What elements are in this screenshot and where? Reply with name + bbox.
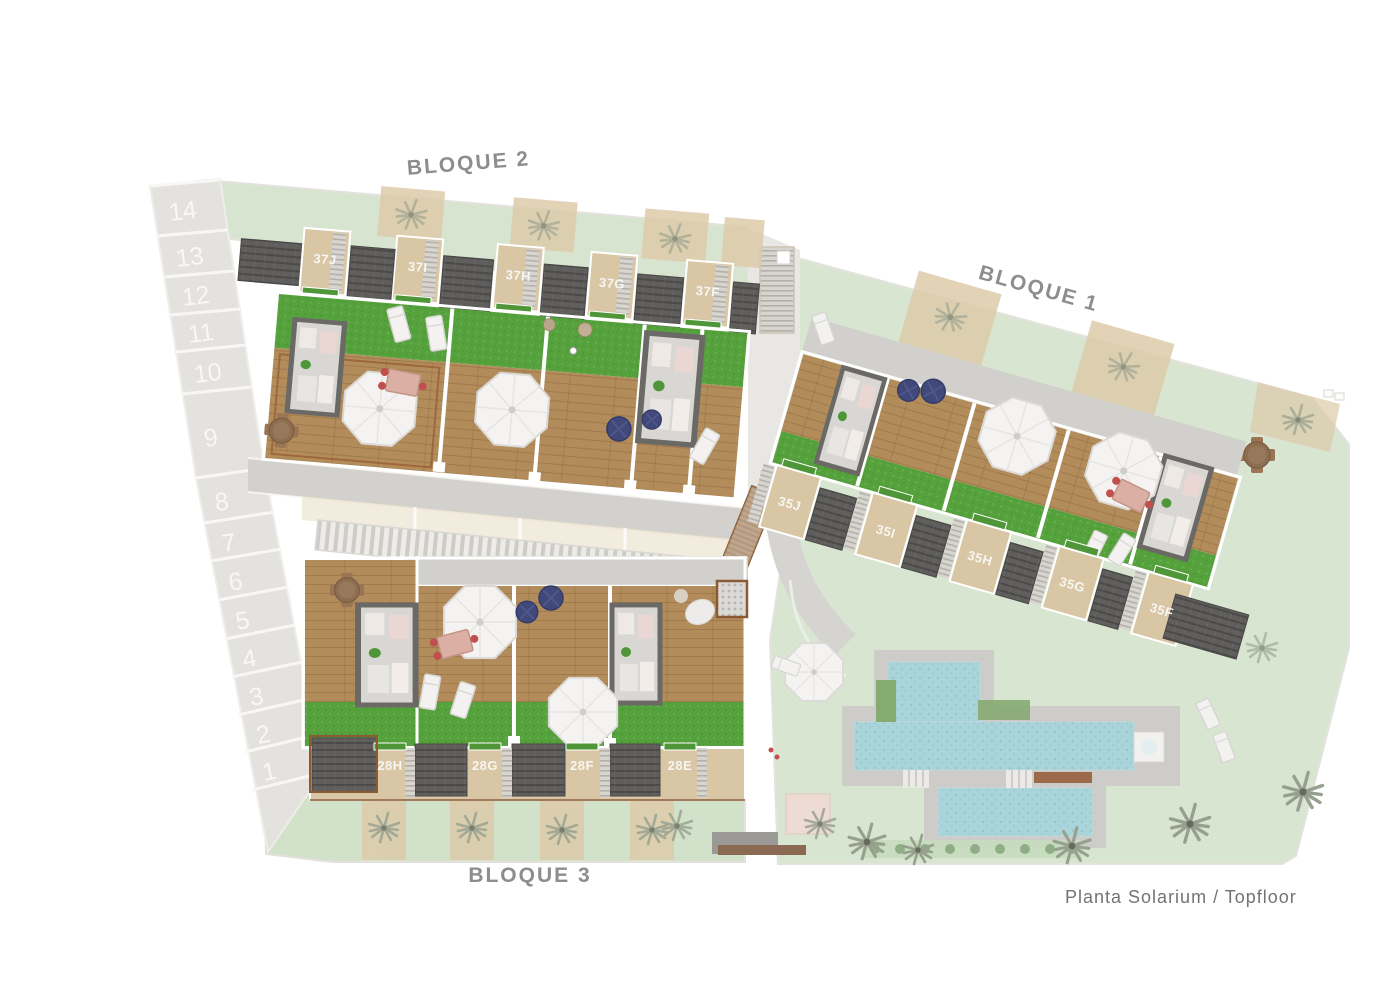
stair-hatch — [502, 748, 512, 798]
parking-space-label: 11 — [186, 318, 215, 349]
landing — [777, 251, 790, 264]
solar-array — [729, 282, 759, 334]
site-plan-page: 14 13 12 11 10 9 8 7 6 5 4 3 2 1 — [0, 0, 1400, 990]
stair-core — [612, 605, 660, 703]
walkway-north — [417, 556, 748, 586]
bloque3-roof-row: 28H 28G 28F 28E — [310, 736, 745, 800]
pool-lower — [938, 788, 1092, 836]
floor-caption: Planta Solarium / Topfloor — [1065, 887, 1297, 907]
site-plan: 14 13 12 11 10 9 8 7 6 5 4 3 2 1 — [0, 0, 1400, 990]
solar-array — [312, 738, 377, 792]
unit-label: 37I — [407, 259, 428, 276]
solar-array — [540, 264, 588, 319]
bloque-3-title: BLOQUE 3 — [468, 864, 591, 887]
solar-array — [610, 744, 660, 796]
unit-label: 28E — [668, 758, 693, 773]
solar-array — [347, 246, 395, 301]
pool-main — [854, 722, 1134, 770]
stair-hatch — [697, 748, 707, 798]
stair-hatch — [405, 748, 415, 798]
stair-core — [287, 319, 344, 415]
unit-label: 37G — [598, 275, 625, 292]
unit-label: 37F — [695, 283, 720, 300]
pouf-icon — [539, 586, 563, 610]
unit-label: 37J — [313, 251, 337, 268]
parking-space-label: 12 — [180, 281, 211, 312]
parking-space-label: 10 — [192, 358, 223, 389]
solar-array — [439, 256, 493, 312]
ball — [569, 347, 577, 355]
jacuzzi-bowl — [1141, 739, 1157, 755]
spa-pad — [717, 581, 747, 617]
marker — [769, 748, 774, 753]
unit-label: 28H — [377, 758, 402, 773]
side-table — [543, 318, 556, 331]
bloque-3-building: 28H 28G 28F 28E — [303, 556, 748, 800]
pool-planter — [876, 680, 896, 722]
side-table — [577, 322, 592, 337]
parasol-icon — [549, 678, 617, 746]
pool-planter — [978, 700, 1030, 720]
parking-space-label: 14 — [167, 196, 198, 227]
unit-label: 37H — [505, 267, 532, 284]
bench-plank — [718, 845, 806, 855]
stair-hatch — [600, 748, 610, 798]
solar-array — [512, 744, 565, 796]
solar-array — [415, 744, 467, 796]
pool-upper — [888, 662, 980, 724]
parking-space-label: 13 — [174, 242, 205, 273]
pouf-icon — [516, 601, 538, 623]
unit-label: 28F — [570, 758, 594, 773]
marker — [775, 755, 780, 760]
unit-label: 28G — [472, 758, 498, 773]
wood-bridge — [1034, 772, 1092, 783]
side-table — [674, 589, 688, 603]
bloque-2-title: BLOQUE 2 — [406, 147, 531, 180]
stair-core — [358, 605, 416, 705]
